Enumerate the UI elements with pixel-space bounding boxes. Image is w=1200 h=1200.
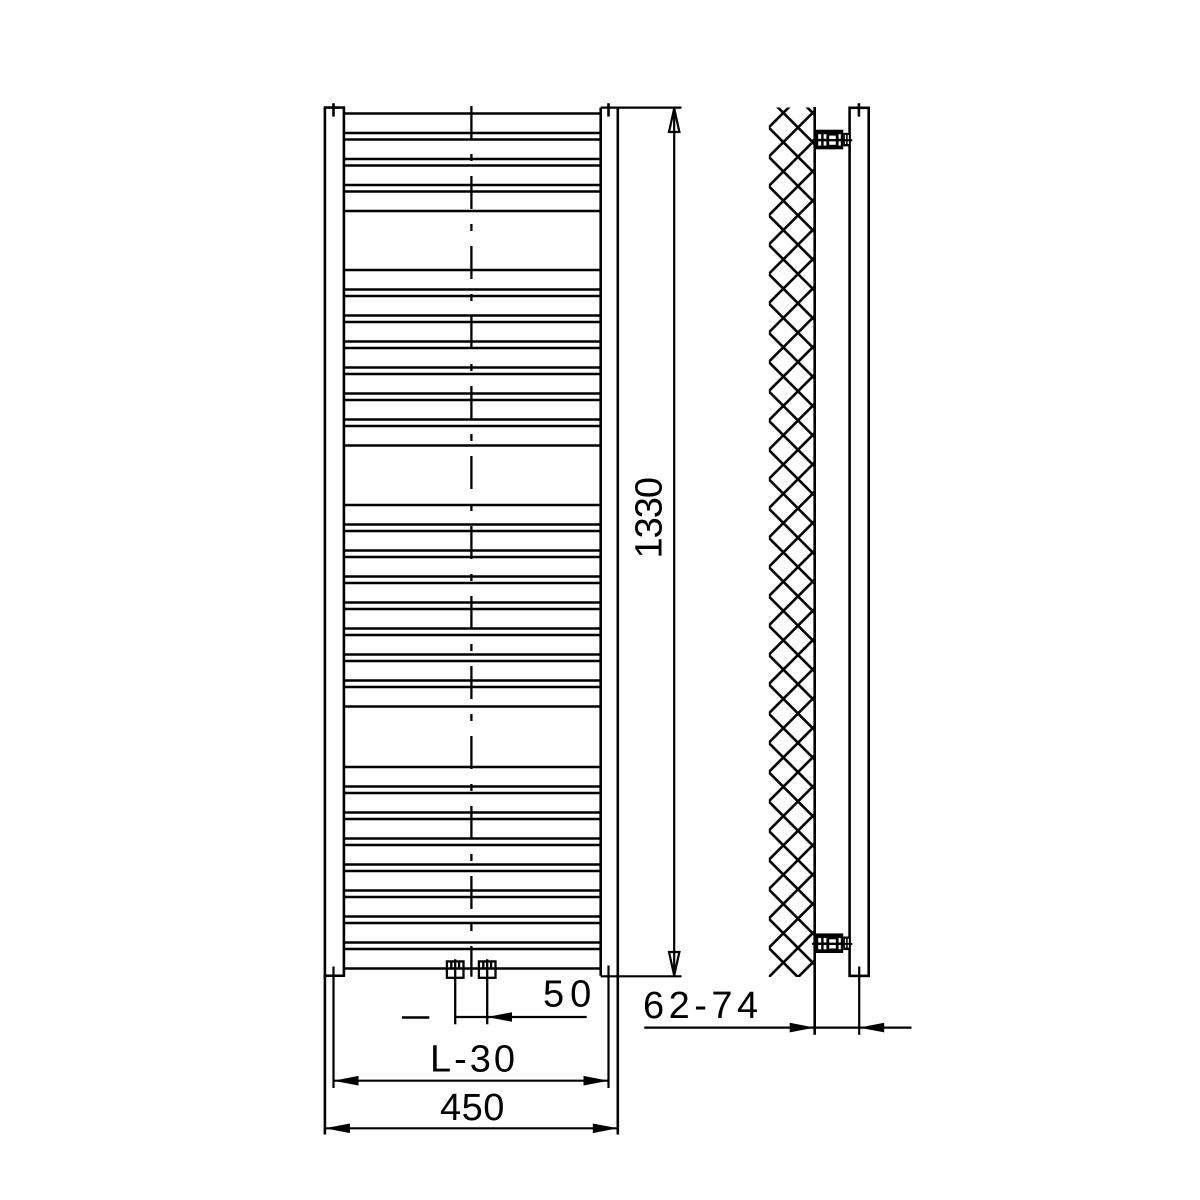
svg-text:L-30: L-30	[430, 1038, 518, 1080]
svg-text:1330: 1330	[629, 478, 671, 559]
svg-text:62-74: 62-74	[643, 985, 763, 1027]
svg-text:450: 450	[440, 1087, 505, 1129]
svg-text:50: 50	[543, 974, 597, 1016]
